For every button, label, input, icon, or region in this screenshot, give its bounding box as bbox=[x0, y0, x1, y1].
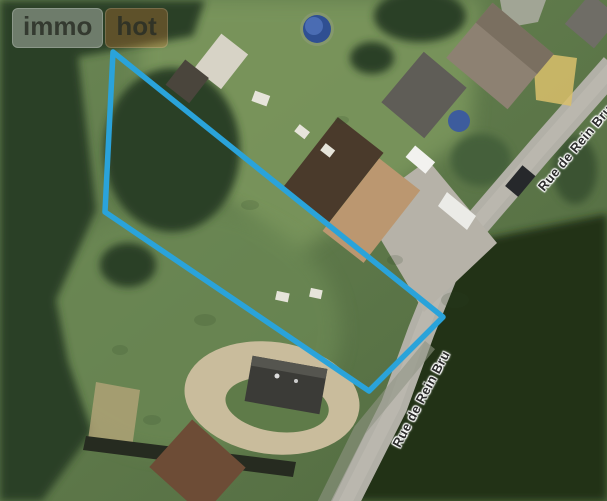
satellite-imagery bbox=[0, 0, 607, 501]
brand-hot-label: hot bbox=[105, 8, 167, 48]
brand-immo-label: immo bbox=[12, 8, 103, 48]
map-canvas[interactable]: Rue de Rein Bru Rue de Rein Bru immo hot bbox=[0, 0, 607, 501]
brand-watermark: immo hot bbox=[12, 8, 168, 48]
